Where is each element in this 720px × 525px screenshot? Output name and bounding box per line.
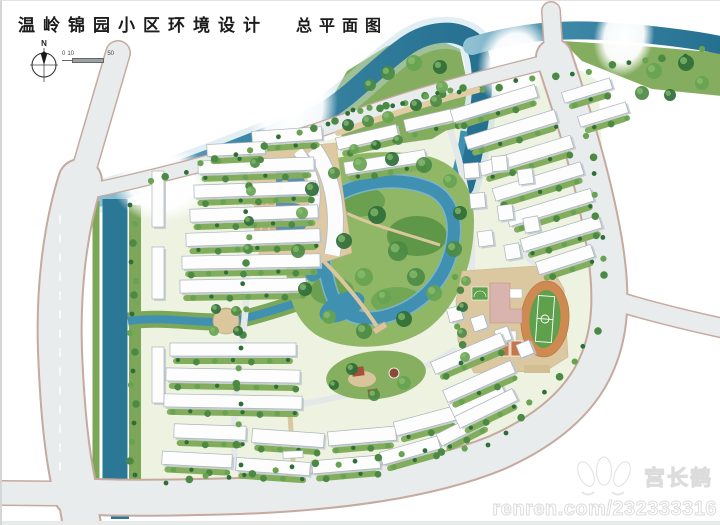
north-compass-icon: N <box>26 37 62 85</box>
north-label: N <box>41 39 47 48</box>
watermark: 宫长鹤 renren.com/232333316 <box>492 456 717 521</box>
scale-label-10: 10 <box>67 51 74 57</box>
scale-label-0: 0 <box>62 51 65 57</box>
lotus-icon <box>572 456 636 498</box>
title-block: 温岭锦园小区环境设计 总平面图 <box>18 11 388 36</box>
plan-sheet: 温岭锦园小区环境设计 总平面图 N 010 50 宫长鹤 <box>0 0 720 525</box>
site-plan-map <box>2 1 720 525</box>
page-subtitle: 总平面图 <box>296 12 388 36</box>
scale-label-50: 50 <box>107 51 114 57</box>
watermark-url: renren.com/232333316 <box>492 498 717 521</box>
page-title: 温岭锦园小区环境设计 <box>18 11 268 36</box>
watermark-name: 宫长鹤 <box>644 462 713 492</box>
sheet-edge <box>2 521 720 525</box>
scale-bar: 010 50 <box>62 51 114 62</box>
